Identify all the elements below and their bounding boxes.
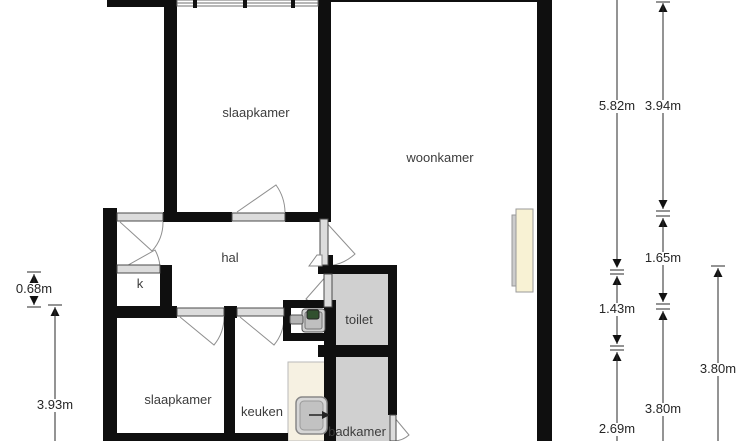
kast-door-leaf (117, 265, 160, 273)
dim-arrow (613, 335, 622, 344)
room-label-kast: k (137, 276, 144, 291)
window-top (177, 0, 318, 8)
dim-arrow (659, 293, 668, 302)
wall-segment (318, 345, 397, 357)
room-label-keuken: keuken (241, 404, 283, 419)
wall-segment (318, 0, 331, 219)
radiator (516, 209, 533, 292)
dim-label-5-82: 5.82m (599, 98, 635, 113)
niche-basin-detail (307, 310, 319, 319)
keuken-door-swing (240, 317, 284, 345)
dim-label-1-65: 1.65m (645, 250, 681, 265)
dim-arrow (613, 259, 622, 268)
dim-label-3-80-mid: 3.80m (645, 401, 681, 416)
wall-segment (163, 212, 232, 222)
floorplan-canvas: 5.82m 3.94m 1.65m 1.43m 3.80m 3.80m 2.69… (0, 0, 750, 441)
balcony-door-leaf (117, 213, 163, 221)
wall-segment (224, 318, 235, 441)
dim-label-1-43: 1.43m (599, 301, 635, 316)
toilet-door-leaf (324, 274, 332, 307)
vent-symbol (309, 255, 322, 266)
slaapkamer-bottom-door-swing (180, 317, 224, 345)
niche-faucet (290, 315, 303, 324)
dim-label-3-80-right: 3.80m (700, 361, 736, 376)
room-label-slaapkamer-top: slaapkamer (222, 105, 290, 120)
dim-label-2-69: 2.69m (599, 421, 635, 436)
window-tick (193, 0, 197, 8)
dim-label-3-94: 3.94m (645, 98, 681, 113)
wall-segment (537, 0, 552, 441)
balcony-door-swing (120, 222, 163, 251)
wall-segment (117, 306, 177, 318)
wall-segment (107, 0, 164, 7)
dim-arrow (30, 296, 39, 305)
slaapkamer-top-door-leaf (232, 213, 285, 221)
dim-arrow (659, 200, 668, 209)
room-label-toilet: toilet (345, 312, 373, 327)
slaapkamer-top-door-swing (237, 185, 285, 212)
wall-segment (388, 265, 397, 415)
wall-segment (164, 0, 177, 222)
wall-segment (318, 265, 397, 274)
wall-segment (331, 0, 537, 2)
keuken-door-leaf (237, 308, 284, 316)
dim-label-3-93: 3.93m (37, 397, 73, 412)
wall-segment (224, 306, 237, 318)
window-tick (291, 0, 295, 8)
slaapkamer-bottom-door-leaf (177, 308, 224, 316)
window-tick (243, 0, 247, 8)
dim-label-0-68: 0.68m (16, 281, 52, 296)
badkamer-door-leaf (390, 415, 396, 441)
room-label-hal: hal (221, 250, 238, 265)
room-label-slaapkamer-bottom: slaapkamer (144, 392, 212, 407)
wall-segment (103, 433, 288, 441)
wall-segment (103, 208, 117, 441)
room-label-woonkamer: woonkamer (405, 150, 474, 165)
room-label-badkamer: badkamer (328, 424, 386, 439)
